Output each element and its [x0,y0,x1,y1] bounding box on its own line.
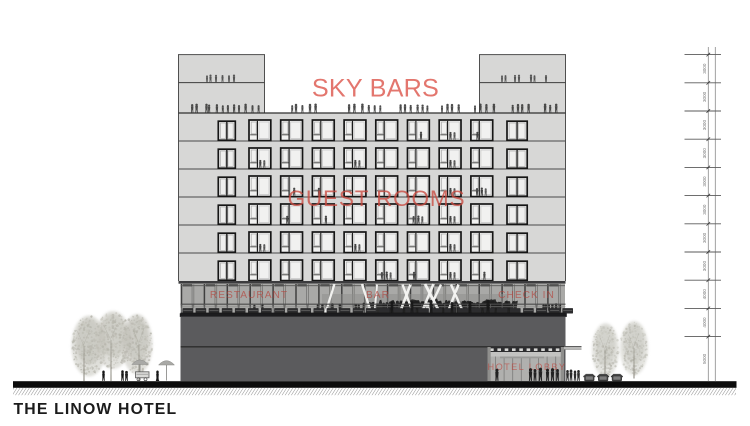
svg-text:3000: 3000 [702,91,707,102]
svg-text:3000: 3000 [702,232,707,243]
svg-text:3000: 3000 [702,176,707,187]
svg-text:RESTAURANT: RESTAURANT [210,290,288,301]
svg-text:4000: 4000 [702,317,707,328]
svg-text:GUEST ROOMS: GUEST ROOMS [288,186,466,211]
svg-text:HOTEL LOBBY: HOTEL LOBBY [488,362,567,372]
svg-text:BAR: BAR [366,290,390,301]
svg-text:SKY BARS: SKY BARS [312,75,439,103]
svg-text:3000: 3000 [702,120,707,131]
svg-text:5000: 5000 [702,353,707,364]
svg-text:3000: 3000 [702,63,707,74]
svg-text:THE LINOW HOTEL: THE LINOW HOTEL [14,401,178,418]
svg-text:3000: 3000 [702,148,707,159]
svg-text:3000: 3000 [702,261,707,272]
svg-text:4000: 4000 [702,289,707,300]
svg-text:CHECK IN: CHECK IN [498,290,555,301]
svg-text:3000: 3000 [702,204,707,215]
